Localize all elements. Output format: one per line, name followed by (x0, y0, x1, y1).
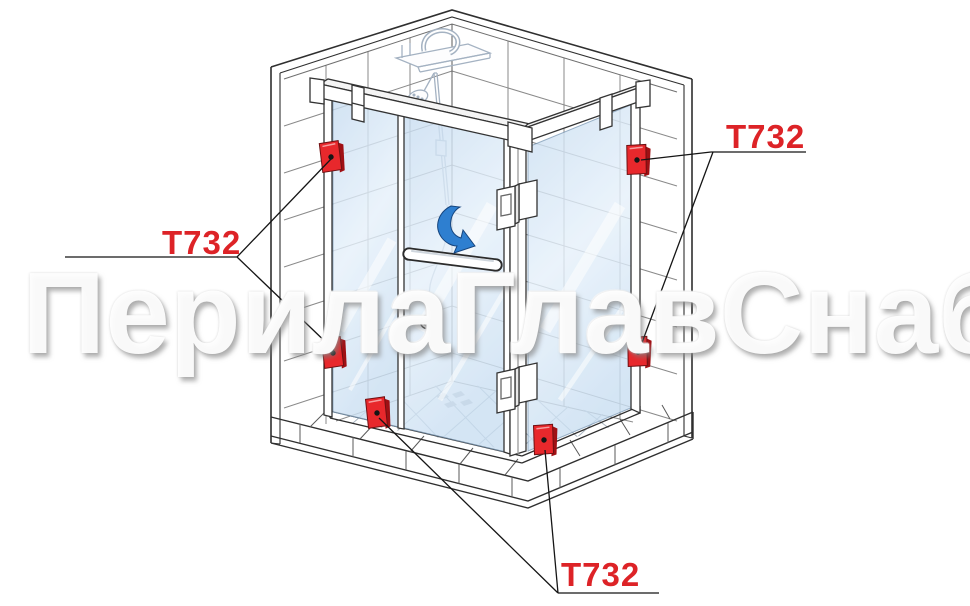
part-callout-bottom: Т732 (561, 558, 640, 591)
clamp-marker-5 (365, 397, 390, 430)
diagram-drawing (0, 0, 970, 606)
door-knob (421, 316, 434, 329)
part-callout-left: Т732 (162, 226, 241, 259)
clamp-marker-4 (626, 335, 652, 368)
part-callout-top-right: Т732 (726, 120, 805, 153)
bar-wall-block-left (310, 78, 324, 104)
glass-door (404, 116, 510, 453)
bar-bracket-right (600, 94, 612, 130)
clamp-marker-3 (625, 143, 651, 176)
shower-enclosure-diagram: ПерилаГлавСнаб Т732 Т732 Т732 (0, 0, 970, 606)
bar-wall-block-right (636, 80, 650, 108)
callout-top-right-lines (640, 152, 806, 348)
bar-corner-connector (508, 122, 532, 152)
clamp-marker-1 (319, 140, 345, 173)
door-stile-left (398, 112, 404, 429)
